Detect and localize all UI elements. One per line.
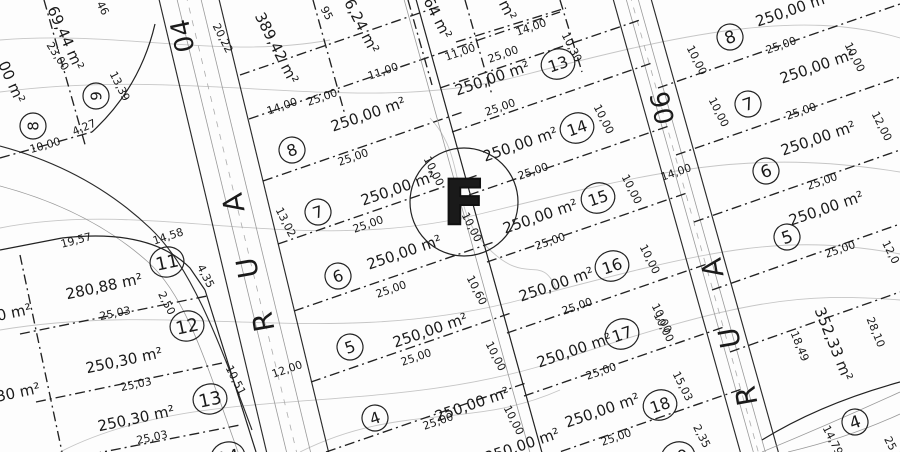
- dimension-label-text: 25,03: [119, 375, 153, 394]
- area-label: 64 m²: [420, 0, 456, 42]
- dimension-label: 25,00: [305, 86, 339, 109]
- dimension-label: 25,00: [764, 34, 798, 57]
- area-label: m²: [495, 0, 520, 23]
- dimension-label-text: 25,00: [599, 426, 633, 449]
- dimension-label-text: 95: [318, 4, 336, 22]
- lot-number-text: 13: [545, 52, 570, 77]
- lot-number: 9: [83, 83, 109, 109]
- dimension-label-text: 25,00: [560, 295, 594, 318]
- dimension-label-text: 10,00: [637, 242, 663, 276]
- street-label-text: 04: [165, 16, 201, 55]
- dimension-label-text: 15,03: [670, 369, 696, 403]
- lot-number-text: 5: [342, 337, 358, 358]
- lot-number: 8: [275, 133, 308, 166]
- lot-number-text: 9: [87, 91, 105, 101]
- dimension-label-text: 13,02: [273, 205, 299, 239]
- area-label: 389,42 m²: [251, 9, 302, 87]
- dimension-label-text: 10,00: [501, 403, 527, 437]
- dimension-label: 10,51: [223, 363, 249, 397]
- lot-number-text: 7: [740, 94, 757, 116]
- dimension-label-text: 12,00: [869, 109, 895, 143]
- dimension-label-text: 4,35: [194, 262, 217, 290]
- dimension-label: 4,35: [194, 262, 217, 290]
- dimension-label: 25,00: [399, 346, 433, 369]
- dimension-label-text: 25,00: [805, 170, 839, 193]
- lot-number: 4: [358, 401, 391, 434]
- lot-number-text: 14: [564, 116, 589, 141]
- area-label-text: 30 m²: [0, 379, 42, 406]
- dimension-label: 25,03: [119, 375, 153, 394]
- dimension-label-text: 4,27: [70, 117, 98, 139]
- area-label-text: 250,00 m²: [562, 389, 642, 431]
- lot-number: 7: [301, 195, 334, 228]
- dimension-label-text: 10,00: [591, 102, 617, 136]
- lot-number: 18: [639, 385, 681, 424]
- dimension-label: 11,00: [366, 60, 400, 83]
- label-layer: 389,42 m²69,44 m²00 m²6,24 m²64 m²m²250,…: [0, 0, 900, 452]
- area-label-text: 352,33 m²: [811, 305, 857, 384]
- street-label: 06: [645, 88, 681, 127]
- block-letter: F: [410, 148, 518, 256]
- lot-number: 14: [208, 439, 247, 452]
- lot-number-text: 4: [367, 408, 383, 429]
- dimension-label: 13,02: [273, 205, 299, 239]
- dimension-label: 25,00: [560, 295, 594, 318]
- area-label-text: 64 m²: [420, 0, 456, 42]
- dimension-label-text: 10,00: [684, 43, 710, 77]
- dimension-label: 25,00: [516, 160, 550, 183]
- dimension-label-text: 10,51: [223, 363, 249, 397]
- area-label: 250,00 m²: [500, 195, 580, 237]
- dimension-label: 10,00: [637, 242, 663, 276]
- area-label-text: 250,30 m²: [84, 343, 164, 377]
- lot-number: 8: [20, 113, 46, 139]
- dimension-label: 25,00: [599, 426, 633, 449]
- dimension-label: 25,03: [135, 428, 169, 447]
- dimension-label-text: 11,00: [443, 41, 477, 64]
- lot-number-text: 8: [284, 140, 300, 161]
- area-label-text: 250,00 m²: [390, 309, 470, 351]
- dimension-label: 18,49: [788, 329, 812, 363]
- area-label-text: 250,00 m²: [480, 123, 560, 165]
- dimension-label: 12,0: [879, 238, 900, 266]
- dimension-label-text: 25,00: [305, 86, 339, 109]
- dimension-label-text: 12,0: [879, 238, 900, 266]
- street-label: A: [695, 256, 731, 281]
- cadastral-map: 389,42 m²69,44 m²00 m²6,24 m²64 m²m²250,…: [0, 0, 900, 452]
- dimension-label: 25,00: [533, 230, 567, 253]
- area-label-text: 00 m²: [0, 58, 29, 106]
- dimension-label: 19,57: [59, 230, 93, 251]
- dimension-label-text: 25,00: [784, 100, 818, 123]
- area-label: 250,00 m²: [562, 389, 642, 431]
- dimension-label: 14,79: [820, 423, 846, 452]
- street-label-text: A: [695, 256, 731, 281]
- dimension-label-text: 25,00: [374, 278, 408, 301]
- lot-number: 15: [577, 178, 619, 217]
- dimension-label-text: 46: [94, 0, 112, 17]
- lot-number-text: 14: [215, 445, 242, 452]
- dimension-label: 25,3: [881, 434, 900, 452]
- area-label: 250,00 m²: [390, 309, 470, 351]
- dimension-label: 25,00: [336, 146, 370, 169]
- dimension-label-text: 2,50: [155, 289, 178, 317]
- dimension-label-text: 25,00: [764, 34, 798, 57]
- dimension-label: 25,00: [584, 360, 618, 383]
- lot-number: 6: [749, 154, 782, 187]
- lot-number: 5: [333, 330, 366, 363]
- lot-number-text: 8: [24, 121, 42, 131]
- area-label: 250,00 m²: [778, 117, 858, 159]
- area-label: 250,00 m: [753, 0, 827, 31]
- lot-number-text: 6: [330, 266, 346, 287]
- dimension-label-text: 25,00: [533, 230, 567, 253]
- dimension-label-text: 25,00: [516, 160, 550, 183]
- lot-number-text: 15: [585, 186, 610, 211]
- lot-number-text: 8: [722, 27, 739, 49]
- dimension-label-text: 10,00: [706, 95, 732, 129]
- dimension-label: 4,27: [70, 117, 98, 139]
- dimension-label: 10,60: [464, 273, 490, 307]
- dimension-label-text: 25,00: [483, 96, 517, 119]
- area-label-text: 250,00 m: [753, 0, 827, 31]
- dimension-label-text: 14,00: [514, 16, 548, 39]
- dimension-label-text: 2,35: [690, 422, 713, 450]
- dimension-label: 25,00: [374, 278, 408, 301]
- dimension-label: 2,50: [155, 289, 178, 317]
- dimension-label-text: 25,00: [823, 238, 857, 261]
- lot-number-text: 11: [154, 250, 181, 275]
- lot-number: 19: [657, 437, 699, 452]
- street-label-text: 06: [645, 88, 681, 127]
- dimension-label: 13,39: [107, 69, 133, 103]
- lot-number: 7: [731, 87, 764, 120]
- lot-number: 6: [321, 259, 354, 292]
- block-letter-text: F: [443, 166, 485, 239]
- dimension-label: 10,00: [706, 95, 732, 129]
- area-label: 250,00 m²: [364, 231, 444, 273]
- lot-number-text: 4: [847, 412, 864, 434]
- area-label-text: 0 m²: [0, 300, 33, 325]
- dimension-label: 14,00: [659, 161, 693, 184]
- dimension-label: 10,00: [28, 135, 62, 156]
- dimension-label: 12,00: [869, 109, 895, 143]
- dimension-label: 25,00: [805, 170, 839, 193]
- lot-number: 4: [838, 405, 871, 438]
- area-label-text: 250,00 m²: [786, 187, 866, 229]
- dimension-label: 25,00: [784, 100, 818, 123]
- dimension-label: 10,00: [501, 403, 527, 437]
- dimension-label-text: 19,57: [59, 230, 93, 251]
- dimension-label: 25,00: [823, 238, 857, 261]
- lot-number-text: 6: [758, 161, 775, 183]
- street-label-text: A: [216, 191, 252, 216]
- dimension-label: 25,00: [483, 96, 517, 119]
- lot-number-text: 19: [665, 445, 690, 452]
- dimension-label-text: 18,49: [788, 329, 812, 363]
- dimension-label-text: 10,00: [28, 135, 62, 156]
- dimension-label: 11,00: [443, 41, 477, 64]
- area-label: 250,00 m²: [480, 123, 560, 165]
- dimension-label-text: 11,00: [366, 60, 400, 83]
- dimension-label: 12,00: [270, 358, 304, 381]
- dimension-label-text: 25,00: [336, 146, 370, 169]
- area-label: 00 m²: [0, 58, 29, 106]
- dimension-label-text: 14,00: [659, 161, 693, 184]
- dimension-label: 25,00: [421, 410, 455, 433]
- street-label: A: [216, 191, 252, 216]
- street-label: 04: [165, 16, 201, 55]
- street-label: R: [246, 309, 282, 334]
- area-label-text: 250,00 m²: [778, 117, 858, 159]
- area-label-text: 250,00 m²: [500, 195, 580, 237]
- dimension-label-text: 25,00: [399, 346, 433, 369]
- lot-number: 8: [713, 20, 746, 53]
- area-label-text: 280,88 m²: [64, 269, 144, 303]
- area-label: 0 m²: [0, 300, 33, 325]
- lot-number: 14: [556, 108, 598, 147]
- dimension-label-text: 25,03: [135, 428, 169, 447]
- area-label: 280,88 m²: [64, 269, 144, 303]
- area-label: 30 m²: [0, 379, 42, 406]
- dimension-label-text: 14,00: [265, 95, 299, 118]
- dimension-label-text: 14,58: [151, 225, 185, 247]
- lot-number-text: 7: [310, 202, 326, 223]
- dimension-label: 10,00: [483, 339, 509, 373]
- lot-number-text: 12: [174, 314, 201, 339]
- dimension-label-text: 25,00: [421, 410, 455, 433]
- area-label: 250,30 m²: [84, 343, 164, 377]
- dimension-label-text: 10,00: [483, 339, 509, 373]
- dimension-label: 28,10: [864, 315, 888, 349]
- dimension-label-text: 10,60: [464, 273, 490, 307]
- dimension-label: 10,00: [684, 43, 710, 77]
- dimension-label: 2,35: [690, 422, 713, 450]
- area-label: 352,33 m²: [811, 305, 857, 384]
- dimension-label-text: 12,00: [270, 358, 304, 381]
- area-label: 250,00 m²: [786, 187, 866, 229]
- dimension-label-text: 13,39: [107, 69, 133, 103]
- dimension-label-text: 14,79: [820, 423, 846, 452]
- dimension-label: 15,03: [670, 369, 696, 403]
- street-label-text: U: [230, 255, 266, 281]
- dimension-label: 14,00: [514, 16, 548, 39]
- street-label: U: [230, 255, 266, 281]
- dimension-label-text: 25,3: [881, 434, 900, 452]
- dimension-label: 95: [318, 4, 336, 22]
- street-label: R: [729, 383, 765, 408]
- dimension-label: 14,00: [265, 95, 299, 118]
- dimension-label: 46: [94, 0, 112, 17]
- dimension-label-text: 25,00: [584, 360, 618, 383]
- area-label-text: 389,42 m²: [251, 9, 302, 87]
- lot-number: 11: [147, 244, 186, 280]
- dimension-label: 10,00: [591, 102, 617, 136]
- dimension-label: 14,58: [151, 225, 185, 247]
- survey-plan-canvas: 389,42 m²69,44 m²00 m²6,24 m²64 m²m²250,…: [0, 0, 900, 452]
- lot-number-text: 16: [599, 254, 624, 279]
- area-label-text: 250,00 m²: [364, 231, 444, 273]
- dimension-label-text: 28,10: [864, 315, 888, 349]
- area-label-text: m²: [495, 0, 520, 23]
- street-label-text: R: [729, 383, 765, 408]
- street-label-text: R: [246, 309, 282, 334]
